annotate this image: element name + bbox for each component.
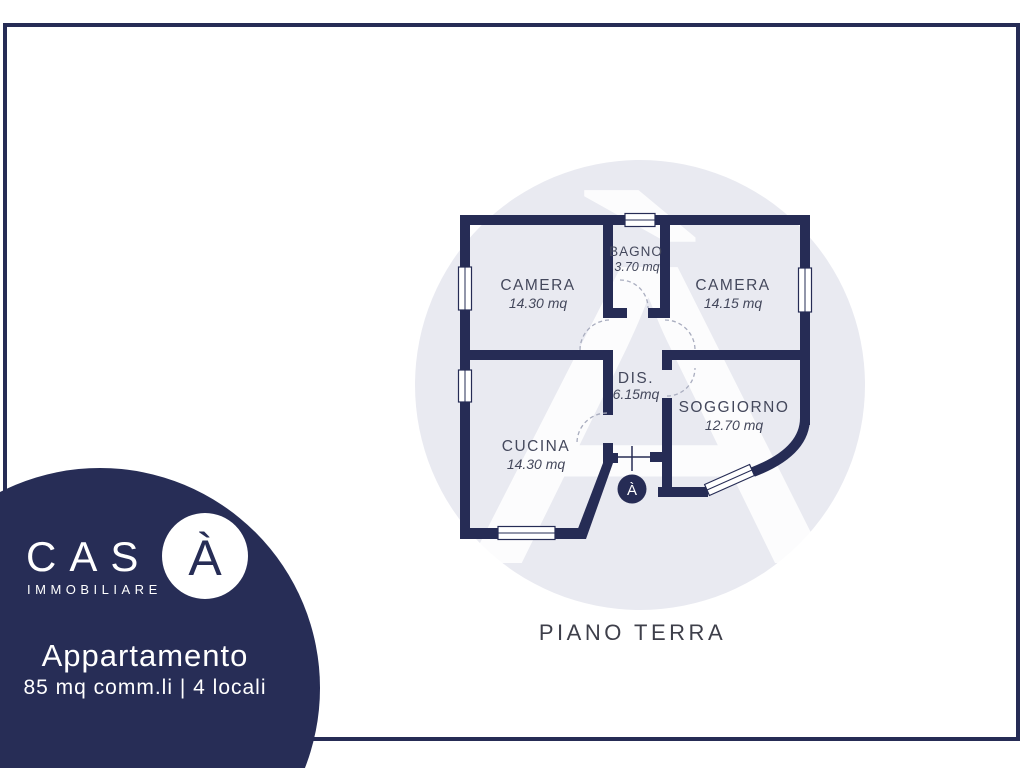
room-label-bagno: BAGNO	[609, 244, 663, 259]
room-area-camera-left: 14.30 mq	[509, 295, 568, 311]
door-arc-bagno	[620, 280, 648, 308]
logo-text: CAS	[26, 536, 151, 578]
door-arc-camera-right	[665, 320, 695, 350]
flyer-page: À	[0, 0, 1024, 768]
room-area-soggiorno: 12.70 mq	[705, 417, 764, 433]
wall-right	[800, 215, 810, 425]
logo-tagline: IMMOBILIARE	[27, 582, 162, 597]
floor-title: PIANO TERRA	[480, 620, 785, 646]
property-specs: 85 mq comm.li | 4 locali	[0, 676, 290, 700]
wall-dis-left	[603, 350, 613, 415]
room-label-soggiorno: SOGGIORNO	[679, 399, 790, 416]
wall-soggiorno-bottom	[658, 487, 708, 497]
wall-entry-right-stub	[650, 452, 672, 462]
floorplan-drawing: À CAMERA 14.30 mq BAGNO 3.70 mq CAMERA 1…	[430, 190, 840, 570]
room-label-camera-left: CAMERA	[500, 277, 575, 294]
wall-soggiorno-left-upper	[662, 350, 672, 370]
door-arc-cucina	[577, 413, 607, 443]
wall-bagno-left	[603, 215, 613, 310]
room-area-bagno: 3.70 mq	[614, 260, 659, 274]
entrance-marker-letter: À	[627, 482, 637, 499]
wall-bagno-right	[660, 215, 670, 310]
wall-soggiorno-left-lower	[662, 398, 672, 492]
room-label-dis: DIS.	[618, 370, 654, 387]
room-label-camera-right: CAMERA	[695, 277, 770, 294]
wall-mid-right	[662, 350, 810, 360]
wall-mid-left	[460, 350, 608, 360]
room-area-camera-right: 14.15 mq	[704, 295, 763, 311]
wall-bagno-right-stub	[648, 308, 670, 318]
door-arc-camera-left	[580, 320, 610, 350]
room-label-cucina: CUCINA	[502, 438, 570, 455]
room-area-dis: 6.15mq	[613, 386, 660, 402]
property-type: Appartamento	[0, 638, 290, 674]
logo-accent-letter: À	[188, 529, 221, 583]
room-area-cucina: 14.30 mq	[507, 456, 566, 472]
door-arcs	[577, 280, 695, 443]
wall-entry-left-stub	[603, 453, 618, 463]
wall-bagno-left-stub	[603, 308, 627, 318]
logo-badge: À	[162, 513, 248, 599]
door-arc-soggiorno	[667, 368, 695, 396]
wall-cucina-diagonal	[574, 463, 613, 539]
entrance-door: À	[618, 446, 651, 504]
